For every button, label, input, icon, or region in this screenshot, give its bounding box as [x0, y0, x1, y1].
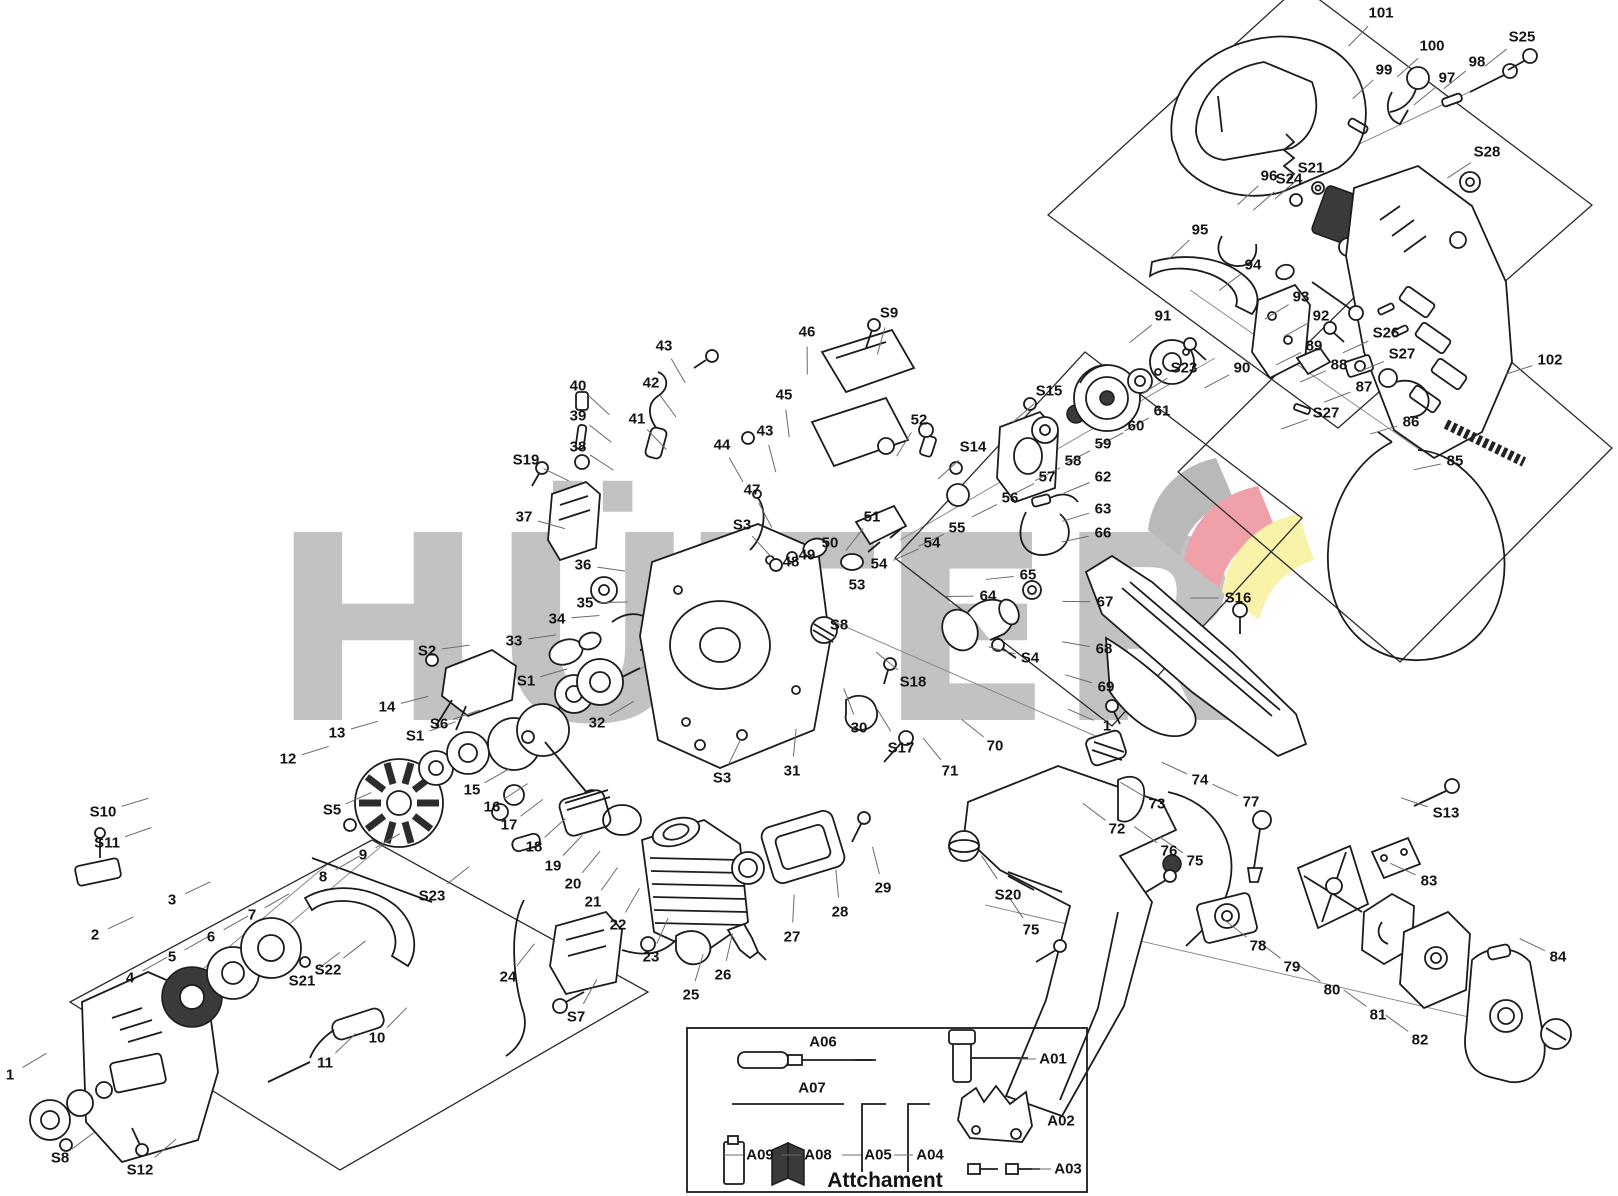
part-label-s16: S16: [1225, 590, 1252, 607]
part-label-54-2: 54: [924, 535, 941, 552]
part-label-16: 16: [484, 799, 501, 816]
part-label-7: 7: [248, 907, 256, 924]
part-label-s2: S2: [418, 643, 436, 660]
part-label-a01: A01: [1039, 1051, 1067, 1068]
part-label-s19: S19: [513, 452, 540, 469]
part-label-21: 21: [585, 894, 602, 911]
part-label-47: 47: [744, 482, 761, 499]
part-label-s9: S9: [880, 305, 898, 322]
part-label-s22: S22: [315, 962, 342, 979]
part-label-s15: S15: [1036, 383, 1063, 400]
part-label-s8: S8: [51, 1150, 69, 1167]
part-label-77: 77: [1243, 794, 1260, 811]
part-label-11: 11: [317, 1055, 333, 1072]
part-label-s8-2: S8: [830, 617, 848, 634]
part-label-89: 89: [1306, 338, 1323, 355]
part-label-s21: S21: [289, 973, 316, 990]
part-label-82: 82: [1412, 1032, 1429, 1049]
exploded-parts-diagram-page: HÜTER: [0, 0, 1618, 1196]
part-label-4: 4: [126, 970, 134, 987]
part-label-s3-2: S3: [713, 770, 731, 787]
part-label-75-2: 75: [1023, 922, 1040, 939]
part-label-59: 59: [1095, 436, 1112, 453]
part-label-43: 43: [656, 338, 673, 355]
part-label-layer: S10S11234567S21S2289S2310111S8S121213S51…: [0, 0, 1618, 1196]
part-label-49: 49: [799, 547, 816, 564]
part-label-s6: S6: [430, 716, 448, 733]
part-label-60: 60: [1128, 418, 1145, 435]
part-label-28: 28: [832, 904, 849, 921]
part-label-22: 22: [610, 917, 627, 934]
part-label-5: 5: [168, 949, 176, 966]
part-label-s4: S4: [1021, 650, 1039, 667]
part-label-33: 33: [506, 633, 523, 650]
part-label-31: 31: [784, 763, 801, 780]
part-label-24: 24: [500, 969, 517, 986]
part-label-54: 54: [871, 556, 888, 573]
part-label-43-2: 43: [757, 423, 774, 440]
part-label-85: 85: [1447, 453, 1464, 470]
attachment-box-title: Attchament: [827, 1169, 943, 1193]
part-label-65: 65: [1020, 567, 1037, 584]
part-label-81: 81: [1370, 1007, 1387, 1024]
part-label-12: 12: [280, 751, 297, 768]
part-label-1-2: 1: [1103, 718, 1111, 735]
part-label-10: 10: [369, 1030, 386, 1047]
part-label-s17: S17: [888, 740, 915, 757]
part-label-s18: S18: [900, 674, 927, 691]
part-label-14: 14: [379, 699, 396, 716]
part-label-68: 68: [1096, 641, 1113, 658]
part-label-17: 17: [501, 817, 518, 834]
part-label-19: 19: [545, 858, 562, 875]
part-label-29: 29: [875, 880, 892, 897]
part-label-1: 1: [6, 1067, 14, 1084]
part-label-a03: A03: [1054, 1161, 1082, 1178]
part-label-71: 71: [942, 763, 959, 780]
part-label-72: 72: [1109, 821, 1126, 838]
part-label-s25: S25: [1509, 29, 1536, 46]
part-label-a02: A02: [1047, 1113, 1075, 1130]
part-label-s23-2: S23: [1171, 360, 1198, 377]
part-label-s12: S12: [127, 1162, 154, 1179]
part-label-70: 70: [987, 738, 1004, 755]
part-label-a09: A09: [746, 1147, 774, 1164]
part-label-90: 90: [1234, 360, 1251, 377]
part-label-3: 3: [168, 892, 176, 909]
part-label-75: 75: [1187, 853, 1204, 870]
part-label-34: 34: [549, 611, 566, 628]
part-label-8: 8: [319, 869, 327, 886]
part-label-25: 25: [683, 987, 700, 1004]
part-label-a07: A07: [798, 1080, 826, 1097]
part-label-9: 9: [359, 847, 367, 864]
part-label-s21-2: S21: [1298, 160, 1325, 177]
part-label-s10: S10: [90, 804, 117, 821]
part-label-50: 50: [822, 535, 839, 552]
part-label-36: 36: [575, 557, 592, 574]
part-label-s28: S28: [1474, 144, 1501, 161]
part-label-62: 62: [1095, 469, 1112, 486]
part-label-s1: S1: [406, 728, 424, 745]
part-label-94: 94: [1245, 257, 1262, 274]
part-label-s5: S5: [323, 802, 341, 819]
part-label-2: 2: [91, 927, 99, 944]
part-label-46: 46: [799, 324, 816, 341]
part-label-57: 57: [1039, 469, 1056, 486]
part-label-27: 27: [784, 929, 801, 946]
part-label-99: 99: [1376, 62, 1393, 79]
part-label-a06: A06: [809, 1034, 837, 1051]
part-label-69: 69: [1098, 679, 1115, 696]
part-label-s26: S26: [1373, 325, 1400, 342]
part-label-48: 48: [783, 554, 800, 571]
part-label-s27-2: S27: [1313, 405, 1340, 422]
part-label-s27: S27: [1389, 346, 1416, 363]
part-label-44: 44: [714, 437, 731, 454]
part-label-s11: S11: [94, 835, 120, 852]
part-label-101: 101: [1368, 5, 1393, 22]
part-label-s13: S13: [1433, 805, 1460, 822]
part-label-56: 56: [1002, 490, 1019, 507]
part-label-91: 91: [1155, 308, 1172, 325]
part-label-87: 87: [1356, 379, 1373, 396]
part-label-s20: S20: [995, 887, 1022, 904]
part-label-s23: S23: [419, 888, 446, 905]
part-label-37: 37: [516, 509, 533, 526]
part-label-100: 100: [1419, 38, 1444, 55]
part-label-79: 79: [1284, 959, 1301, 976]
part-label-15: 15: [464, 782, 481, 799]
part-label-13: 13: [329, 725, 346, 742]
part-label-74: 74: [1192, 772, 1209, 789]
part-label-95: 95: [1192, 222, 1209, 239]
part-label-92: 92: [1313, 308, 1330, 325]
part-label-102: 102: [1537, 352, 1562, 369]
part-label-88: 88: [1331, 357, 1348, 374]
part-label-41: 41: [629, 411, 646, 428]
part-label-a05: A05: [864, 1147, 892, 1164]
part-label-97: 97: [1439, 70, 1456, 87]
part-label-s14: S14: [960, 439, 987, 456]
part-label-45: 45: [776, 387, 793, 404]
part-label-35: 35: [577, 595, 594, 612]
part-label-55: 55: [949, 520, 966, 537]
part-label-18: 18: [526, 839, 543, 856]
part-label-73: 73: [1149, 796, 1166, 813]
part-label-s1-2: S1: [517, 673, 535, 690]
part-label-30: 30: [851, 720, 868, 737]
part-label-80: 80: [1324, 982, 1341, 999]
part-label-s3: S3: [733, 517, 751, 534]
part-label-67: 67: [1097, 594, 1114, 611]
part-label-s7: S7: [567, 1009, 585, 1026]
part-label-23: 23: [643, 949, 660, 966]
part-label-a04: A04: [916, 1147, 944, 1164]
part-label-52: 52: [911, 412, 928, 429]
part-label-76: 76: [1161, 843, 1178, 860]
part-label-78: 78: [1250, 938, 1267, 955]
part-label-26: 26: [715, 967, 732, 984]
part-label-64: 64: [980, 588, 997, 605]
part-label-20: 20: [565, 876, 582, 893]
part-label-83: 83: [1421, 873, 1438, 890]
part-label-6: 6: [207, 929, 215, 946]
part-label-39: 39: [570, 408, 587, 425]
part-label-38: 38: [570, 439, 587, 456]
part-label-93: 93: [1293, 289, 1310, 306]
part-label-53: 53: [849, 577, 866, 594]
part-label-84: 84: [1550, 949, 1567, 966]
part-label-63: 63: [1095, 501, 1112, 518]
part-label-98: 98: [1469, 54, 1486, 71]
part-label-86: 86: [1403, 414, 1420, 431]
part-label-66: 66: [1095, 525, 1112, 542]
part-label-42: 42: [643, 375, 660, 392]
part-label-61: 61: [1154, 403, 1171, 420]
part-label-58: 58: [1065, 453, 1082, 470]
part-label-a08: A08: [804, 1147, 832, 1164]
part-label-32: 32: [589, 715, 606, 732]
part-label-40: 40: [570, 378, 587, 395]
part-label-51: 51: [864, 509, 881, 526]
